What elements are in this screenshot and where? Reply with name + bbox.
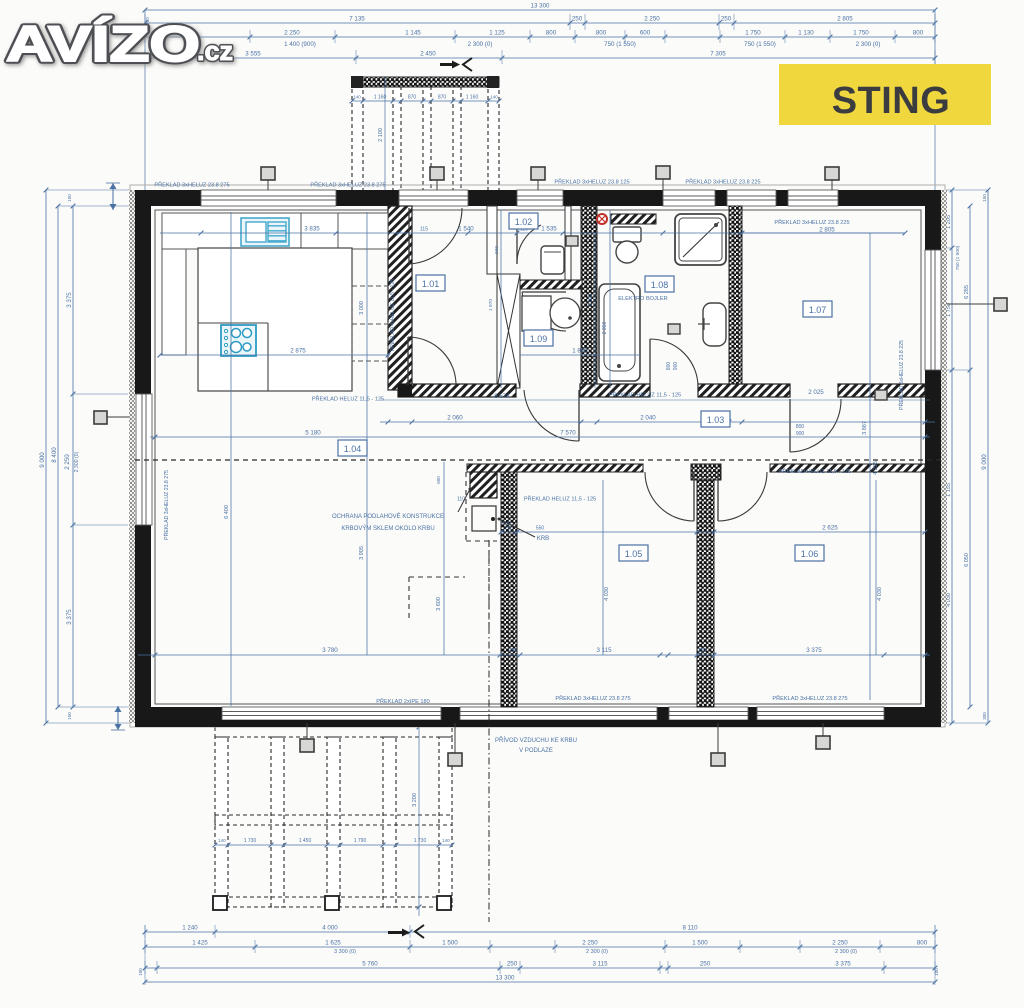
svg-text:1 625: 1 625 [325,940,341,947]
svg-text:100: 100 [138,968,143,976]
svg-text:300: 300 [982,712,987,720]
svg-text:2 625: 2 625 [822,525,838,532]
svg-text:900: 900 [673,362,679,371]
svg-text:PŘEKLAD 3xHELUZ 23.8 275: PŘEKLAD 3xHELUZ 23.8 275 [310,181,385,189]
svg-text:870: 870 [408,95,417,101]
svg-text:600: 600 [436,476,441,484]
svg-text:3 300 (0): 3 300 (0) [334,949,356,955]
svg-text:140: 140 [442,838,450,843]
svg-text:5 180: 5 180 [305,430,321,437]
svg-text:.cz: .cz [197,36,233,66]
svg-text:1 970: 1 970 [488,299,494,311]
svg-text:3 375: 3 375 [835,961,851,968]
svg-text:1 750: 1 750 [853,30,869,37]
svg-text:5 760: 5 760 [362,961,378,968]
svg-text:4 235: 4 235 [873,461,879,475]
svg-text:1 730: 1 730 [414,838,427,844]
svg-text:1 130: 1 130 [798,30,814,37]
svg-text:3 115: 3 115 [596,647,612,654]
svg-text:PŘEKLAD HELUZ 11,5 - 125: PŘEKLAD HELUZ 11,5 - 125 [312,395,384,403]
svg-text:800: 800 [917,940,928,947]
svg-text:2 450: 2 450 [420,51,436,58]
svg-text:PŘEKLAD 3xHELUZ 23.8 225: PŘEKLAD 3xHELUZ 23.8 225 [685,178,760,186]
svg-text:250: 250 [698,648,707,654]
svg-text:1 750: 1 750 [745,30,761,37]
svg-text:3 375: 3 375 [66,609,73,625]
svg-text:KRB: KRB [537,536,549,542]
svg-text:1 240: 1 240 [182,925,198,932]
svg-text:2 250: 2 250 [64,454,71,470]
svg-text:140: 140 [353,95,361,100]
svg-text:3 115: 3 115 [592,961,608,968]
svg-text:3 887: 3 887 [862,421,868,435]
svg-text:PŘEKLAD 3xHELUZ 23.8 225: PŘEKLAD 3xHELUZ 23.8 225 [897,340,905,410]
svg-text:8 400: 8 400 [51,447,58,463]
svg-text:600: 600 [640,30,651,37]
svg-text:1 790: 1 790 [354,838,367,844]
svg-text:6 285: 6 285 [964,285,970,299]
svg-text:1 160: 1 160 [374,95,387,101]
svg-text:1 730: 1 730 [244,838,257,844]
svg-text:750 (1 500): 750 (1 500) [955,245,961,270]
svg-text:2 300 (0): 2 300 (0) [835,949,857,955]
svg-text:800: 800 [596,30,607,37]
svg-text:AVÍZO: AVÍZO [6,16,200,72]
svg-text:KRBOVÝM SKLEM OKOLO KRBU: KRBOVÝM SKLEM OKOLO KRBU [341,525,434,532]
svg-text:750 (1 550): 750 (1 550) [744,41,776,48]
svg-text:800: 800 [546,30,557,37]
svg-text:2 040: 2 040 [640,415,656,422]
svg-text:3 555: 3 555 [245,51,261,58]
svg-text:2 300 (0): 2 300 (0) [586,949,608,955]
svg-text:PŘEKLAD 3xHELUZ 23.8 125: PŘEKLAD 3xHELUZ 23.8 125 [554,178,629,186]
svg-text:2 250: 2 250 [832,940,848,947]
svg-text:1.01: 1.01 [422,279,440,289]
svg-text:OCHRANA PODLAHOVÉ KONSTRUKCE: OCHRANA PODLAHOVÉ KONSTRUKCE [332,513,444,520]
svg-text:4 030: 4 030 [877,587,883,601]
svg-text:2 250: 2 250 [644,16,660,23]
svg-text:1 450: 1 450 [299,838,312,844]
svg-text:2 875: 2 875 [290,348,306,355]
svg-text:870: 870 [438,95,447,101]
svg-text:2 250: 2 250 [284,30,300,37]
svg-text:V PODLAZE: V PODLAZE [519,748,553,754]
svg-text:1.08: 1.08 [651,280,669,290]
svg-text:140: 140 [490,95,498,100]
svg-text:1.05: 1.05 [625,549,643,559]
svg-text:1 500: 1 500 [442,940,458,947]
svg-text:150: 150 [67,194,72,202]
svg-text:250: 250 [507,961,518,968]
svg-text:13 300: 13 300 [531,3,550,10]
svg-text:4 030: 4 030 [604,587,610,601]
svg-text:250: 250 [572,16,583,23]
svg-text:1 540: 1 540 [458,226,474,233]
svg-text:7 135: 7 135 [349,16,365,23]
svg-text:2 025: 2 025 [808,389,824,396]
svg-text:PŘEKLAD 4xHELUZ 11,5 - 125: PŘEKLAD 4xHELUZ 11,5 - 125 [388,279,396,352]
svg-text:2 050: 2 050 [602,322,608,335]
svg-text:4 000: 4 000 [322,925,338,932]
svg-text:6 674: 6 674 [494,393,510,400]
svg-text:6 400: 6 400 [224,505,230,519]
svg-text:3 000: 3 000 [359,301,365,315]
svg-text:1 500: 1 500 [692,940,708,947]
svg-text:3 835: 3 835 [304,226,320,233]
svg-text:250: 250 [700,961,711,968]
svg-text:1 400 (900): 1 400 (900) [284,41,316,48]
svg-text:800: 800 [913,30,924,37]
svg-text:150: 150 [67,712,72,720]
svg-text:13 300: 13 300 [496,975,515,982]
svg-text:3 375: 3 375 [806,647,822,654]
svg-text:1 125: 1 125 [489,30,505,37]
svg-text:2 300 (0): 2 300 (0) [468,41,493,48]
svg-text:2 300 (0): 2 300 (0) [856,41,881,48]
svg-text:PŘÍVOD VZDUCHU KE KRBU: PŘÍVOD VZDUCHU KE KRBU [495,736,577,744]
svg-text:140: 140 [218,838,226,843]
svg-text:750 (1 550): 750 (1 550) [604,41,636,48]
svg-text:PŘEKLAD 3xHELUZ 23.8 275: PŘEKLAD 3xHELUZ 23.8 275 [772,694,847,702]
svg-text:PŘEKLAD 2xIPE 180: PŘEKLAD 2xIPE 180 [376,697,429,705]
svg-text:3 000: 3 000 [588,294,594,307]
svg-text:ELEKTRO BOJLER: ELEKTRO BOJLER [618,296,667,302]
svg-text:2 805: 2 805 [837,16,853,23]
svg-text:1 145: 1 145 [405,30,421,37]
svg-text:PŘEKLAD HELUZ 11,5 - 125: PŘEKLAD HELUZ 11,5 - 125 [779,467,851,475]
svg-text:7 305: 7 305 [710,51,726,58]
svg-text:115: 115 [420,227,428,233]
svg-text:7 570: 7 570 [560,430,576,437]
svg-text:2 060: 2 060 [447,415,463,422]
svg-text:1 160: 1 160 [466,95,479,101]
svg-text:9 000: 9 000 [981,454,988,470]
svg-text:2 250: 2 250 [582,940,598,947]
svg-text:1.03: 1.03 [707,415,725,425]
svg-text:3 780: 3 780 [322,647,338,654]
svg-text:2 100: 2 100 [378,128,384,142]
svg-text:250: 250 [509,648,518,654]
svg-text:550: 550 [536,526,545,532]
svg-text:2 300 (0): 2 300 (0) [74,451,80,472]
svg-text:PŘEKLAD HELUZ 11,5 - 125: PŘEKLAD HELUZ 11,5 - 125 [609,391,681,399]
svg-text:900: 900 [796,431,805,437]
svg-text:1.02: 1.02 [515,217,533,227]
svg-text:PŘEKLAD 3xHELUZ 23.8 275: PŘEKLAD 3xHELUZ 23.8 275 [162,470,170,540]
svg-text:PŘEKLAD 3xHELUZ 23.8 275: PŘEKLAD 3xHELUZ 23.8 275 [154,181,229,189]
svg-text:800: 800 [796,424,805,430]
svg-text:PŘEKLAD 3xHELUZ 23.8 225: PŘEKLAD 3xHELUZ 23.8 225 [774,218,849,226]
svg-text:150: 150 [982,194,987,202]
svg-text:3 375: 3 375 [66,292,73,308]
svg-text:250: 250 [721,16,732,23]
svg-text:9 000: 9 000 [39,452,46,468]
svg-text:1 425: 1 425 [192,940,208,947]
svg-text:1 535: 1 535 [541,226,557,233]
svg-text:1.04: 1.04 [344,444,362,454]
svg-text:3 905: 3 905 [359,546,365,560]
svg-text:900: 900 [494,246,500,254]
svg-text:1.07: 1.07 [809,305,827,315]
svg-text:800: 800 [666,362,672,371]
svg-text:3 600: 3 600 [436,597,442,611]
svg-text:2 805: 2 805 [819,227,835,234]
svg-text:230: 230 [505,526,514,532]
svg-text:1 885: 1 885 [572,348,588,355]
svg-text:8 110: 8 110 [682,925,698,932]
svg-text:1.06: 1.06 [801,549,819,559]
svg-text:6 050: 6 050 [964,553,970,567]
svg-text:PŘEKLAD 3xHELUZ 23.8 275: PŘEKLAD 3xHELUZ 23.8 275 [555,694,630,702]
svg-text:PŘEKLAD HELUZ 11,5 - 125: PŘEKLAD HELUZ 11,5 - 125 [524,495,596,503]
svg-text:STING: STING [832,80,951,122]
svg-text:1.09: 1.09 [530,334,548,344]
svg-text:3 200: 3 200 [412,793,418,807]
